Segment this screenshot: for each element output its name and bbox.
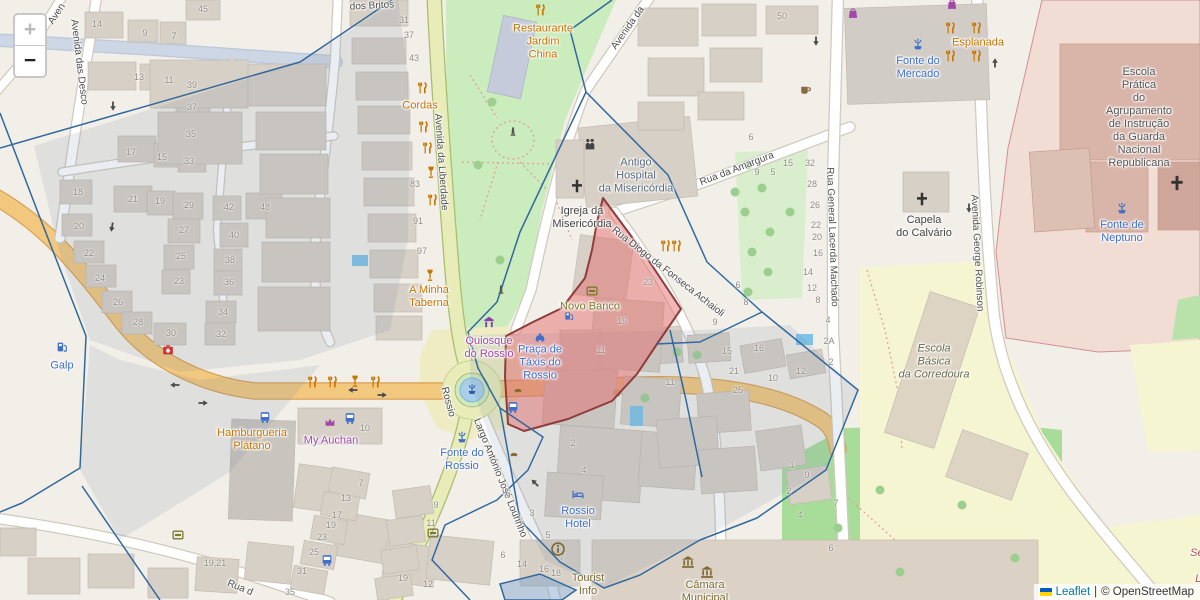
building: [128, 20, 158, 42]
building: [28, 558, 80, 594]
attribution-separator: |: [1094, 586, 1097, 598]
building: [160, 22, 186, 44]
building: [186, 0, 220, 20]
tree: [748, 248, 757, 257]
building: [381, 546, 420, 575]
building: [844, 4, 989, 105]
building: [766, 6, 818, 34]
tree: [758, 184, 767, 193]
attribution-bar: Leaflet | © OpenStreetMap: [1034, 584, 1200, 600]
tree: [876, 486, 885, 495]
tree: [474, 161, 483, 170]
building: [1158, 162, 1200, 230]
building: [148, 568, 188, 598]
building: [392, 485, 434, 518]
tree: [786, 208, 795, 217]
tree: [834, 524, 843, 533]
tree: [896, 568, 905, 577]
building: [1029, 148, 1094, 232]
tree: [766, 228, 775, 237]
building: [648, 58, 704, 96]
oneway-arrow-icon: [966, 204, 972, 213]
building: [0, 528, 36, 556]
building: [903, 172, 949, 212]
zoom-in-button[interactable]: +: [15, 15, 45, 45]
building: [702, 4, 756, 36]
oneway-arrow-icon: [813, 37, 819, 46]
zoom-control: + −: [13, 13, 47, 78]
building: [1060, 44, 1200, 160]
building: [710, 48, 762, 82]
tree: [741, 208, 750, 217]
building: [85, 12, 123, 38]
tree: [496, 256, 505, 265]
building: [375, 574, 414, 600]
building: [88, 62, 136, 90]
tree: [488, 98, 497, 107]
tree: [958, 501, 967, 510]
building: [556, 140, 584, 198]
building: [88, 554, 134, 588]
openstreetmap-link[interactable]: © OpenStreetMap: [1101, 586, 1194, 598]
building: [426, 535, 494, 585]
building: [638, 8, 698, 46]
map-canvas[interactable]: AvenAvenida das Descodos BritosAvenida d…: [0, 0, 1200, 600]
building: [1086, 162, 1148, 232]
building: [698, 92, 744, 120]
building: [300, 540, 338, 570]
building: [244, 542, 294, 585]
building: [195, 557, 239, 594]
building: [298, 408, 382, 444]
leaflet-link[interactable]: Leaflet: [1056, 586, 1091, 598]
building: [638, 102, 684, 130]
oneway-arrow-icon: [110, 102, 116, 111]
tree: [744, 161, 753, 170]
ukraine-flag-icon: [1040, 588, 1052, 596]
base-map-svg: [0, 0, 1200, 600]
tree: [764, 268, 773, 277]
oneway-arrow-icon: [992, 58, 998, 67]
tree: [744, 288, 753, 297]
tree: [1011, 554, 1020, 563]
zoom-out-button[interactable]: −: [15, 45, 45, 76]
tree: [731, 188, 740, 197]
landuse-area: [1130, 340, 1200, 452]
building: [386, 516, 425, 547]
